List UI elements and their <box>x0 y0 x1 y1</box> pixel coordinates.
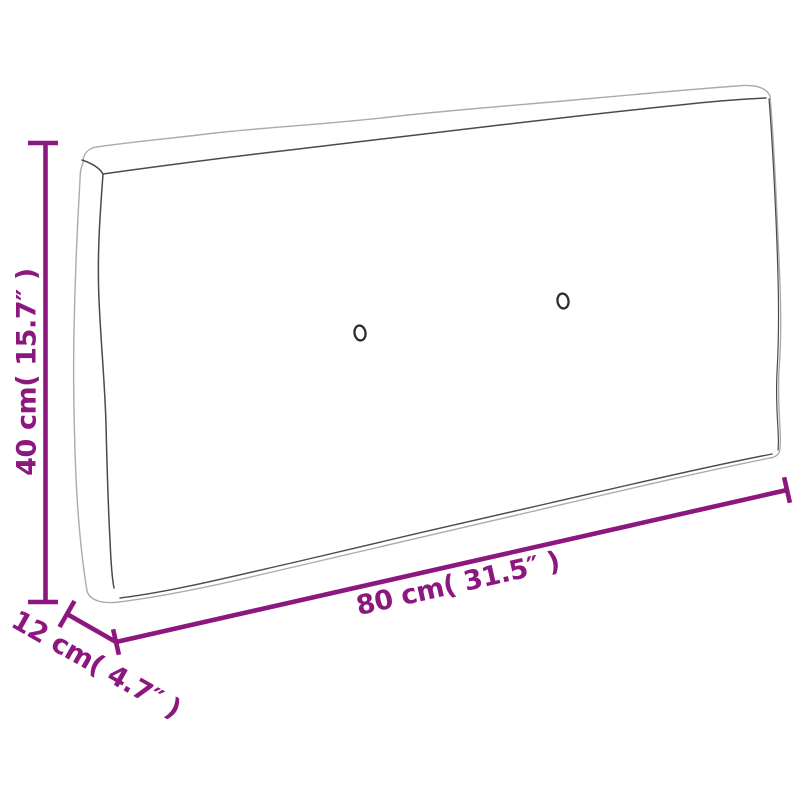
length-dimension-start-tick <box>113 629 119 654</box>
tufting-button-left <box>353 325 366 342</box>
depth-dimension: 12 cm( 4.7″ ) <box>6 601 186 725</box>
length-dimension-line <box>116 490 787 642</box>
height-dimension: 40 cm( 15.7″ ) <box>12 143 59 602</box>
tufting-button-right <box>556 293 569 310</box>
length-dimension-label: 80 cm( 31.5″ ) <box>353 546 562 622</box>
cushion-illustration <box>74 85 781 602</box>
diagram-svg: 40 cm( 15.7″ ) 12 cm( 4.7″ ) 80 cm( 31.5… <box>0 0 800 800</box>
cushion-seam-left <box>98 174 114 588</box>
depth-dimension-start-tick <box>60 601 75 627</box>
length-dimension-end-tick <box>784 477 790 502</box>
height-dimension-label: 40 cm( 15.7″ ) <box>12 268 43 476</box>
depth-dimension-label: 12 cm( 4.7″ ) <box>6 605 186 725</box>
dimension-diagram: 40 cm( 15.7″ ) 12 cm( 4.7″ ) 80 cm( 31.5… <box>0 0 800 800</box>
length-dimension: 80 cm( 31.5″ ) <box>113 477 790 654</box>
